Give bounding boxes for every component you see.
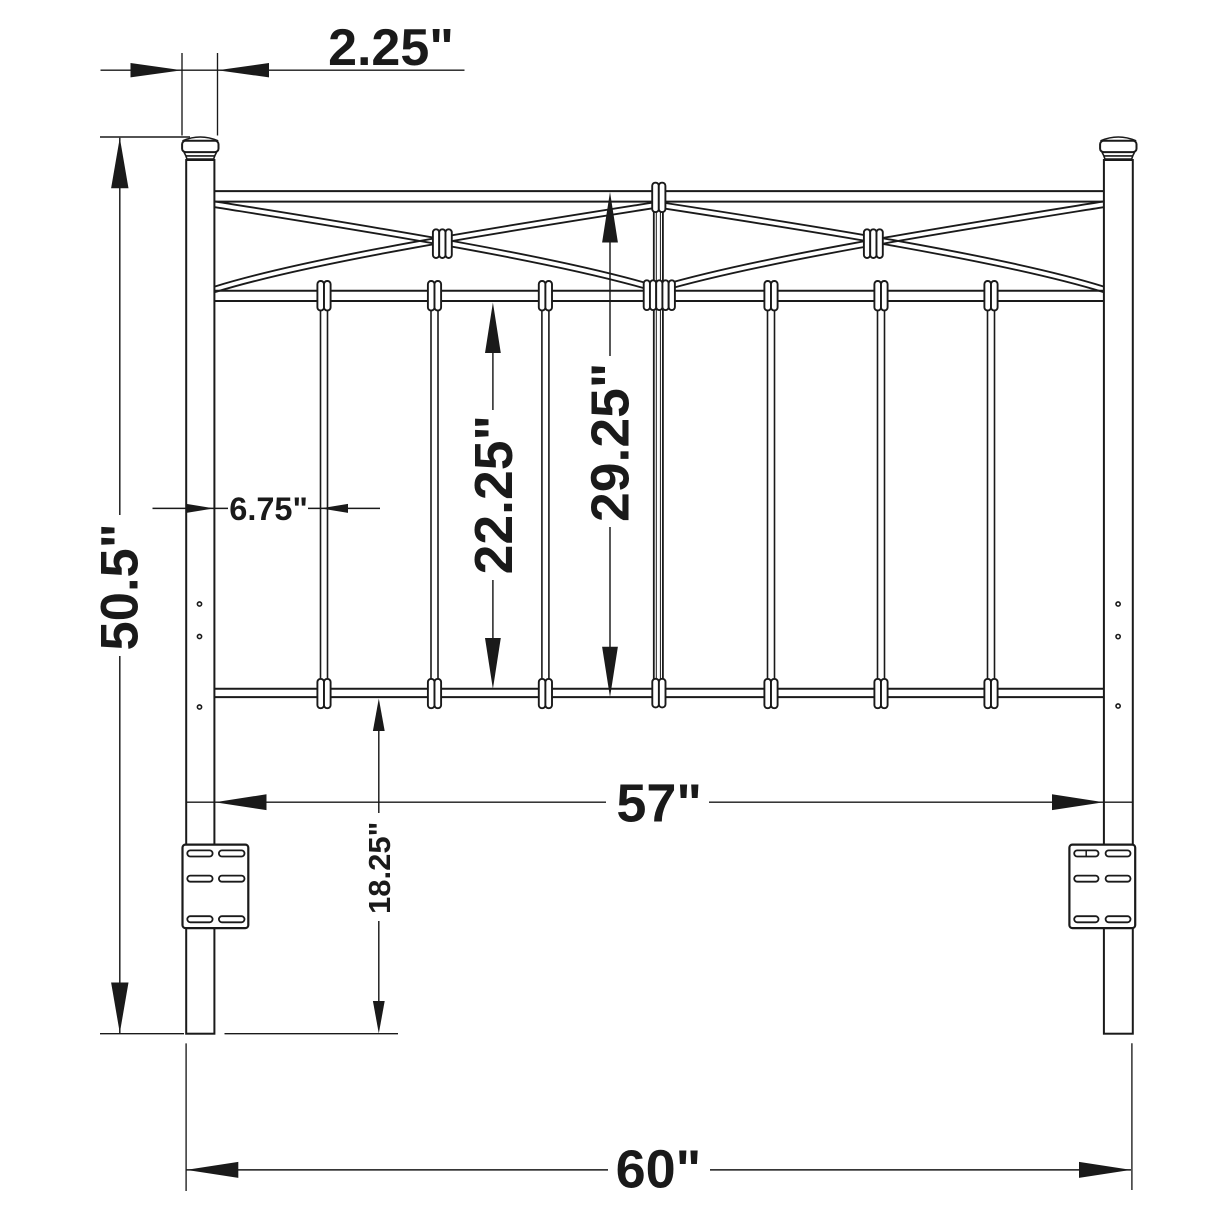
svg-text:50.5": 50.5" — [90, 523, 149, 650]
svg-text:57": 57" — [616, 773, 702, 833]
svg-text:18.25": 18.25" — [362, 822, 397, 914]
svg-text:6.75": 6.75" — [229, 491, 308, 527]
svg-text:2.25": 2.25" — [328, 19, 454, 77]
svg-text:29.25": 29.25" — [581, 363, 640, 522]
svg-text:22.25": 22.25" — [465, 415, 524, 574]
svg-text:60": 60" — [616, 1140, 702, 1200]
